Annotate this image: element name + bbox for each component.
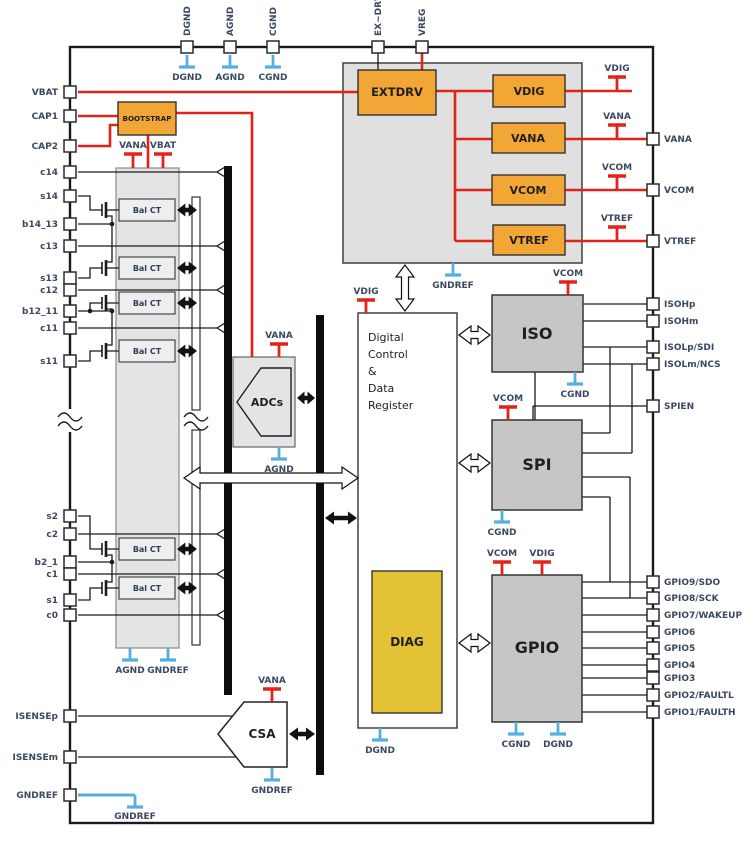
junction-dot [110,222,115,227]
pin-label-gndref: GNDREF [16,791,58,801]
supply-label-vcom: VCOM [553,269,583,279]
supply-label-vdig: VDIG [353,287,378,297]
csa-label: CSA [249,727,277,741]
vtref-label: VTREF [509,234,549,247]
pin-right-gpio7-wakeup [647,609,659,621]
pin-top-vreg [416,41,428,53]
digital-control-label-2: Control [368,348,408,361]
ground-label-cgnd: CGND [488,528,517,538]
pin-label-c14: c14 [40,168,58,178]
digital-control-label-4: Data [368,382,394,395]
pin-top-cgnd [267,41,279,53]
pin-left-isensep [64,710,76,722]
adcs-label: ADCs [251,396,284,409]
ground-label-agnd: AGND [115,666,144,676]
pin-right-vtref [647,235,659,247]
pin-label-s11: s11 [40,357,58,367]
pin-label-isensem: ISENSEm [12,753,58,763]
ground-label-agnd: AGND [215,73,244,83]
pin-label-c2: c2 [46,530,58,540]
pin-label-vbat: VBAT [32,88,59,98]
pin-left-s1 [64,594,76,606]
ground-label-dgnd: DGND [365,746,395,756]
pin-label-dgnd: DGND [183,6,193,36]
pin-left-s14 [64,190,76,202]
pin-top-dgnd [181,41,193,53]
pin-right-gpio6 [647,626,659,638]
supply-label-vtref: VTREF [601,214,633,224]
pin-label-isohp: ISOHp [664,300,696,310]
ground-label-gndref: GNDREF [432,281,474,291]
pin-label-s14: s14 [40,192,58,202]
pin-label-gpio8-sck: GPIO8/SCK [664,594,720,604]
supply-label-vcom: VCOM [602,163,632,173]
analog-bus-bar [224,166,232,695]
pin-label-vana: VANA [664,135,692,145]
supply-label-vbat: VBAT [150,141,177,151]
digital-bus-bar [316,315,324,775]
bal-ct-label: Bal CT [133,299,162,308]
pin-label-isohm: ISOHm [664,317,698,327]
pin-right-gpio3 [647,672,659,684]
supply-label-vcom: VCOM [493,394,523,404]
pin-left-cap2 [64,140,76,152]
supply-label-vdig: VDIG [604,64,629,74]
ground-label-gndref: GNDREF [147,666,189,676]
pin-left-isensem [64,751,76,763]
pin-label-gpio4: GPIO4 [664,661,695,671]
pin-right-isolm-ncs [647,358,659,370]
pin-left-c14 [64,166,76,178]
pin-top-ex-drv [372,41,384,53]
pin-left-b12-11 [64,305,76,317]
pin-left-c0 [64,609,76,621]
spi-label: SPI [522,455,551,474]
pin-label-gpio2-faultl: GPIO2/FAULTL [664,691,734,701]
cell-monitor-container [116,168,179,648]
gpio-label: GPIO [515,638,559,657]
pin-label-s1: s1 [46,596,58,606]
pin-label-ex-drv: EX~DRV [374,0,384,36]
pin-left-s2 [64,510,76,522]
pin-label-vcom: VCOM [664,186,694,196]
pin-label-c12: c12 [40,286,58,296]
ground-label-dgnd: DGND [172,73,202,83]
bootstrap-label: BOOTSTRAP [122,114,171,123]
pin-label-isolm-ncs: ISOLm/NCS [664,360,721,370]
pin-label-isolp-sdi: ISOLp/SDI [664,343,714,353]
pin-right-isolp-sdi [647,341,659,353]
pin-right-isohm [647,315,659,327]
pin-left-cap1 [64,110,76,122]
pin-left-s11 [64,355,76,367]
level-shift-channel-bottom [192,430,200,645]
pin-label-gpio3: GPIO3 [664,674,695,684]
pin-left-c12 [64,284,76,296]
iso-label: ISO [521,324,552,343]
pin-left-b14-13 [64,218,76,230]
digital-control-label-3: & [368,365,377,378]
pin-label-spien: SPIEN [664,402,694,412]
ground-label-agnd: AGND [264,465,293,475]
pin-label-vtref: VTREF [664,237,696,247]
pin-label-agnd: AGND [226,7,236,36]
pin-label-c13: c13 [40,242,58,252]
pin-label-gpio1-faulth: GPIO1/FAULTH [664,708,736,718]
vcom-label: VCOM [510,184,547,197]
pin-left-vbat [64,86,76,98]
pin-right-isohp [647,298,659,310]
pin-left-c13 [64,240,76,252]
vana-label: VANA [511,132,545,145]
pin-left-c1 [64,568,76,580]
bal-ct-label: Bal CT [133,545,162,554]
junction-dot [110,560,115,565]
ground-label-gndref: GNDREF [251,786,293,796]
pin-label-c11: c11 [40,324,58,334]
pin-right-gpio9-sdo [647,576,659,588]
supply-label-vana: VANA [258,676,286,686]
pin-left-gndref [64,789,76,801]
pin-label-b12-11: b12_11 [22,307,58,317]
vdig-label: VDIG [514,85,545,98]
bal-ct-label: Bal CT [133,347,162,356]
pin-label-cap2: CAP2 [32,142,58,152]
block-diagram: DGNDAGNDCGNDEX~DRVVREGVBATCAP1CAP2c14s14… [0,0,750,839]
diag-label: DIAG [390,635,424,649]
pin-label-gpio7-wakeup: GPIO7/WAKEUP [664,611,742,621]
pin-label-b14-13: b14_13 [22,220,58,230]
pin-right-gpio8-sck [647,592,659,604]
junction-dot [110,309,115,314]
pin-label-gpio9-sdo: GPIO9/SDO [664,578,720,588]
digital-control-label-5: Register [368,399,414,412]
digital-control-label-1: Digital [368,331,404,344]
pin-left-c11 [64,322,76,334]
pin-label-cap1: CAP1 [32,112,58,122]
ground-label-cgnd: CGND [502,740,531,750]
pin-right-spien [647,400,659,412]
ground-label-cgnd: CGND [259,73,288,83]
pin-label-c1: c1 [46,570,58,580]
ground-label-gndref: GNDREF [114,812,156,822]
supply-label-vana: VANA [119,141,147,151]
pin-label-gpio5: GPIO5 [664,644,695,654]
bal-ct-label: Bal CT [133,584,162,593]
supply-label-vana: VANA [265,331,293,341]
supply-label-vcom: VCOM [487,549,517,559]
pin-left-b2-1 [64,556,76,568]
pin-right-vcom [647,184,659,196]
pin-label-s2: s2 [46,512,58,522]
pin-label-gpio6: GPIO6 [664,628,695,638]
pin-label-c0: c0 [46,611,58,621]
pin-right-gpio5 [647,642,659,654]
bal-ct-label: Bal CT [133,206,162,215]
extdrv-label: EXTDRV [371,85,423,99]
block-diagram-canvas: DGNDAGNDCGNDEX~DRVVREGVBATCAP1CAP2c14s14… [0,0,750,839]
pin-label-isensep: ISENSEp [15,712,58,722]
pin-left-c2 [64,528,76,540]
ground-label-dgnd: DGND [543,740,573,750]
junction-dot [88,309,93,314]
pin-label-vreg: VREG [418,9,428,36]
pin-right-vana [647,133,659,145]
pin-label-s13: s13 [40,274,58,284]
bal-ct-label: Bal CT [133,264,162,273]
pin-right-gpio4 [647,659,659,671]
ground-label-cgnd: CGND [561,390,590,400]
pin-left-s13 [64,272,76,284]
pin-label-cgnd: CGND [269,7,279,36]
supply-label-vana: VANA [603,112,631,122]
pin-right-gpio2-faultl [647,689,659,701]
pin-right-gpio1-faulth [647,706,659,718]
pin-top-agnd [224,41,236,53]
supply-label-vdig: VDIG [529,549,554,559]
pin-label-b2-1: b2_1 [35,558,58,568]
